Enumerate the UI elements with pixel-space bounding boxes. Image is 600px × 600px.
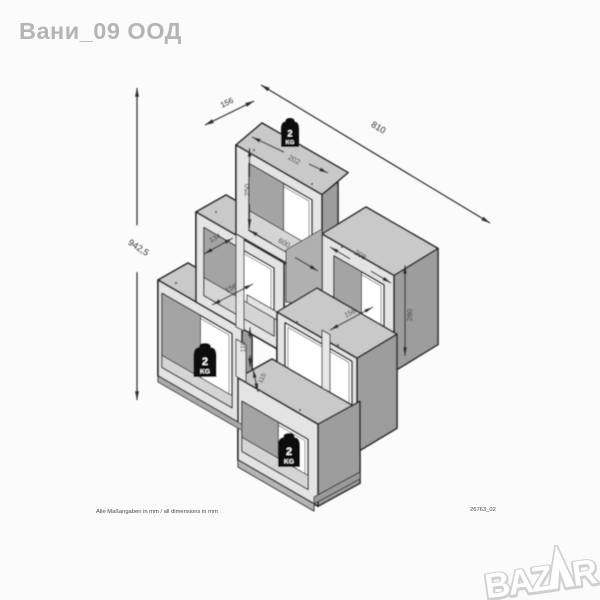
svg-text:156: 156: [219, 96, 235, 110]
svg-text:942,5: 942,5: [126, 237, 150, 258]
svg-text:280: 280: [405, 309, 414, 322]
svg-text:KG: KG: [200, 369, 210, 376]
svg-text:R: R: [570, 552, 600, 594]
svg-text:2: 2: [287, 129, 292, 139]
svg-text:KG: KG: [284, 459, 294, 466]
svg-text:BAZ: BAZ: [483, 558, 555, 600]
svg-text:250: 250: [243, 184, 252, 197]
svg-text:2: 2: [202, 356, 208, 368]
svg-text:KG: KG: [286, 140, 295, 146]
svg-text:810: 810: [370, 119, 388, 135]
svg-text:2: 2: [286, 446, 292, 458]
svg-text:118: 118: [240, 341, 247, 352]
